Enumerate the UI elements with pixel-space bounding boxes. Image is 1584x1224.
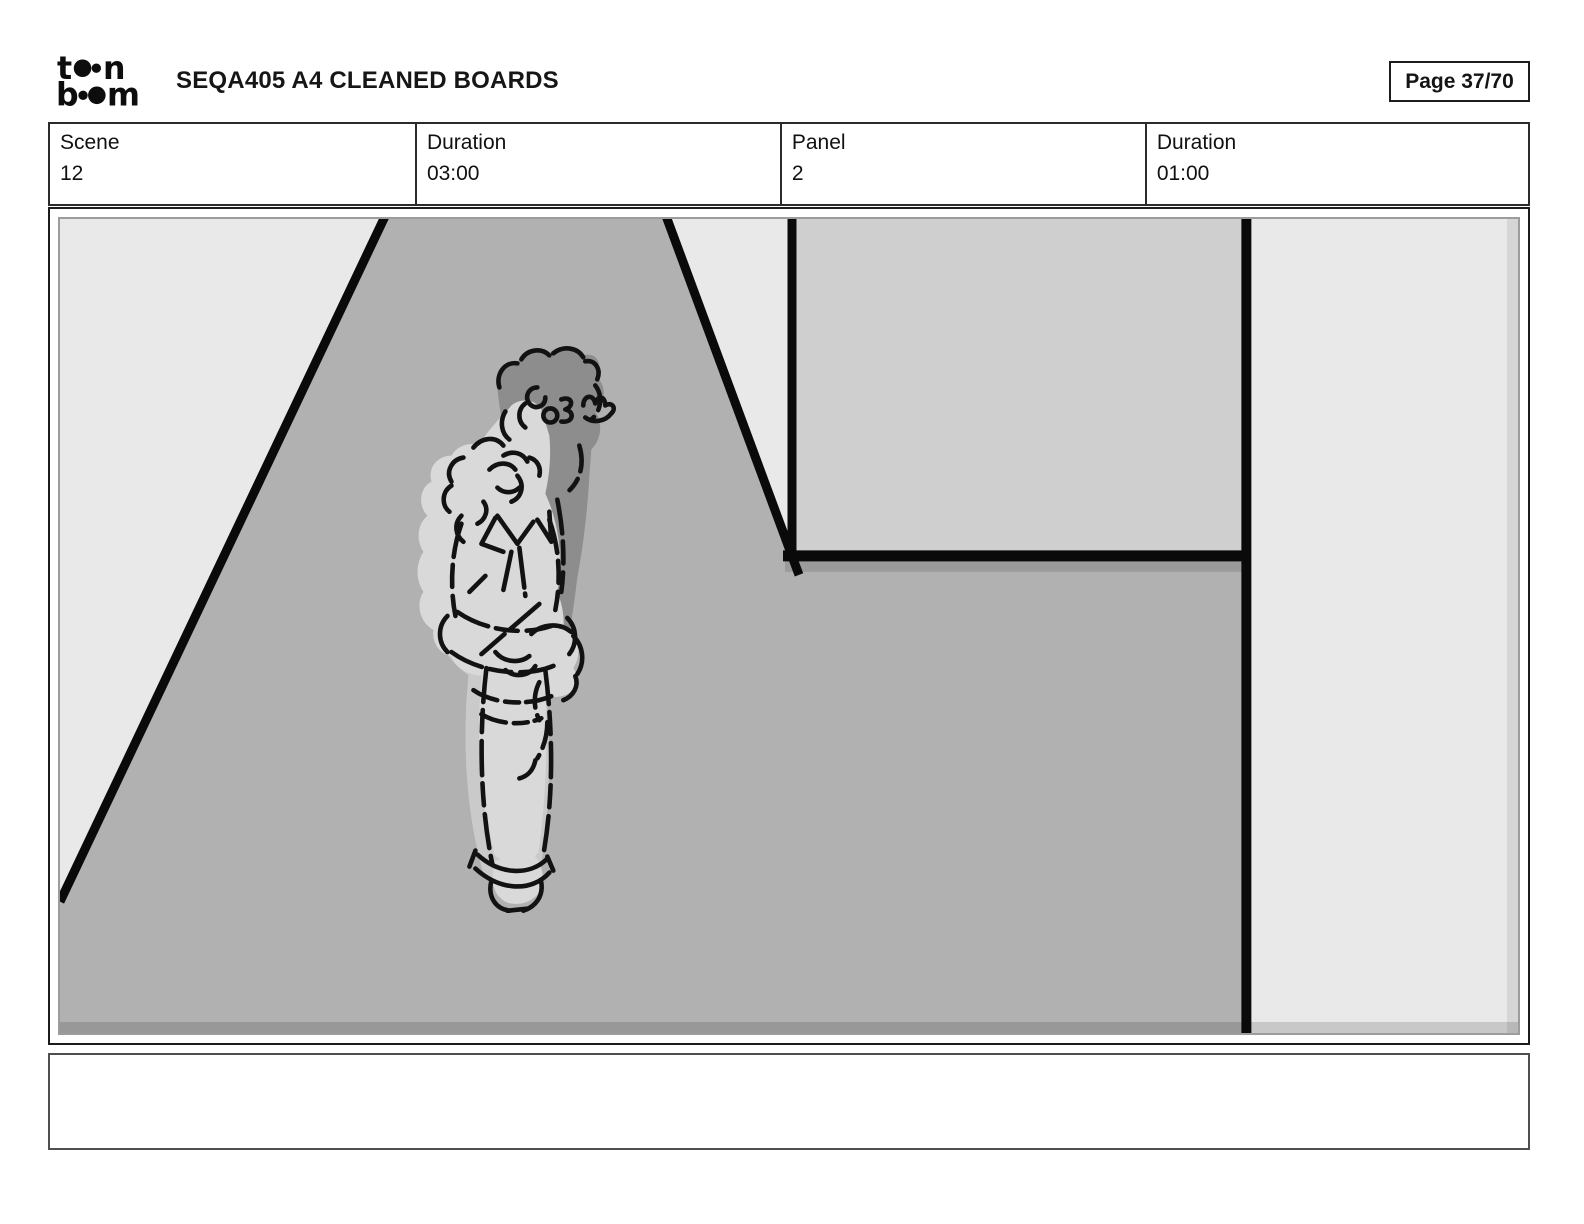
- bottom-edge-shadow: [60, 1022, 1518, 1033]
- toonboom-logo: t n b m: [56, 52, 154, 110]
- line-shadow: [785, 561, 1246, 572]
- foot-shape: [493, 855, 543, 904]
- logo-letter-b: b: [56, 78, 79, 111]
- wall-rectangle: [792, 219, 1246, 556]
- panel-label: Panel: [792, 131, 1135, 155]
- right-edge-shadow: [1507, 219, 1518, 1033]
- page-number-badge: Page 37/70: [1389, 61, 1530, 102]
- logo-letter-m: m: [107, 78, 140, 111]
- scene-label: Scene: [60, 131, 405, 155]
- scene-value: 12: [60, 162, 405, 186]
- logo-dot-large: [74, 59, 92, 77]
- document-title: SEQA405 A4 CLEANED BOARDS: [176, 67, 559, 95]
- panel-duration-label: Duration: [1157, 131, 1518, 155]
- camera-frame: [58, 217, 1520, 1035]
- scene-duration-value: 03:00: [427, 162, 770, 186]
- panel-value: 2: [792, 162, 1135, 186]
- info-cell-panel: Panel 2: [780, 124, 1145, 204]
- panel-duration-value: 01:00: [1157, 162, 1518, 186]
- panel-artwork: [60, 219, 1518, 1033]
- logo-dot-small: [92, 64, 101, 73]
- storyboard-panel: [48, 207, 1530, 1045]
- info-cell-scene-duration: Duration 03:00: [415, 124, 780, 204]
- scene-duration-label: Duration: [427, 131, 770, 155]
- logo-dot-small2: [78, 91, 87, 100]
- caption-box: [48, 1053, 1530, 1150]
- storyboard-page: t n b m SEQA405 A4 CLEANED BOARDS Page 3…: [0, 0, 1584, 1224]
- logo-dot-large2: [88, 87, 106, 105]
- header: t n b m SEQA405 A4 CLEANED BOARDS: [56, 48, 1530, 114]
- info-cell-panel-duration: Duration 01:00: [1145, 124, 1528, 204]
- info-table: Scene 12 Duration 03:00 Panel 2 Duration…: [48, 122, 1530, 206]
- info-cell-scene: Scene 12: [50, 124, 415, 204]
- shoe-stroke: [507, 909, 527, 911]
